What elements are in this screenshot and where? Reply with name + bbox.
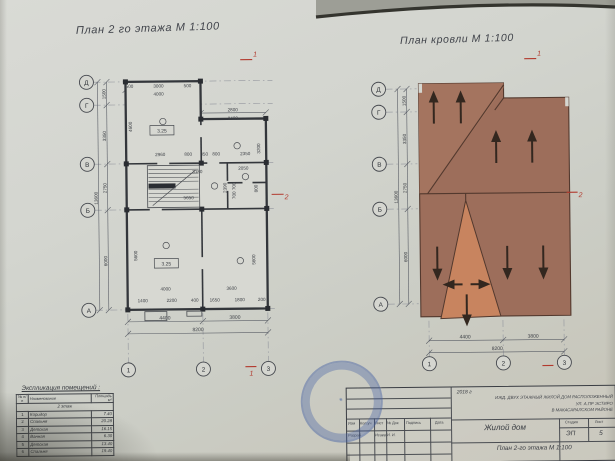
dim-label: 4400 bbox=[159, 315, 170, 321]
section-mark: 2 bbox=[578, 192, 583, 199]
tb-col-header: Изм bbox=[348, 422, 355, 426]
stamp-text: ⁕ bbox=[338, 398, 345, 406]
dim-label: 3800 bbox=[528, 334, 539, 340]
dim-label: 500 bbox=[184, 83, 192, 88]
roof-plan-drawing: 1500 3350 2750 6000 13600 4400 3800 8200… bbox=[354, 25, 615, 388]
roof-surface bbox=[418, 82, 570, 319]
dim-label: 800 bbox=[184, 152, 192, 157]
tb-sheet-value: 5 bbox=[599, 430, 603, 437]
col-header: № п/п bbox=[16, 394, 28, 403]
dim-label: 3400 bbox=[228, 116, 239, 121]
axis-label: Д bbox=[84, 80, 89, 87]
dim-label: 3350 bbox=[402, 133, 407, 144]
dim-label: 2800 bbox=[228, 107, 239, 112]
dim-label: 350 bbox=[200, 152, 208, 157]
exterior-walls bbox=[125, 80, 267, 309]
axis-label: Б bbox=[378, 207, 382, 214]
section-mark: 1 bbox=[537, 51, 541, 58]
dim-label: 800 bbox=[254, 184, 259, 192]
dim-label: 200 bbox=[258, 297, 266, 302]
dim-label: 2390 bbox=[222, 182, 227, 193]
dim-label: 4000 bbox=[160, 286, 171, 291]
tb-row-value: Исаев И. И. bbox=[375, 433, 396, 437]
axis-label: 1 bbox=[428, 361, 432, 368]
cell-num: 2 bbox=[16, 419, 28, 427]
axis-label: 2 bbox=[202, 367, 206, 374]
dim-label: 1500 bbox=[402, 95, 407, 106]
dim-label: 6000 bbox=[403, 251, 408, 262]
dim-label: 700 700 bbox=[231, 182, 236, 199]
dim-label: 400 bbox=[191, 298, 199, 303]
cell-num: 1 bbox=[16, 411, 28, 419]
axis-label: 3 bbox=[563, 360, 567, 367]
paper-sheet: План 2 го этажа М 1:100 План кровли М 1:… bbox=[0, 0, 615, 461]
tb-row-label: Разраб bbox=[348, 433, 361, 437]
cell-name: Спальня bbox=[29, 448, 92, 456]
cell-num: 4 bbox=[17, 434, 29, 442]
dim-label: 1800 bbox=[235, 297, 246, 302]
cell-num: 5 bbox=[17, 441, 29, 449]
dim-label: 4600 bbox=[128, 121, 133, 132]
dim-label: 4000 bbox=[153, 91, 164, 96]
dim-label: 3180 bbox=[192, 169, 203, 174]
title-block: Изм Кол.уч Лист № Док Подпись Дата Разра… bbox=[346, 385, 615, 461]
dim-label: 6000 bbox=[103, 256, 108, 267]
dim-label: 2200 bbox=[167, 298, 178, 303]
window-sills bbox=[145, 311, 202, 321]
tb-stage-value: ЭП bbox=[566, 430, 575, 437]
room-schedule-table: № п/п Наименование Площадь м² 2 этаж 1 К… bbox=[16, 393, 115, 457]
axis-label: 1 bbox=[127, 367, 131, 374]
floor-plan-drawing: 3.25 3.25 500 3000 500 4000 2800 3400 46… bbox=[56, 28, 350, 391]
axis-label: Б bbox=[86, 208, 90, 215]
dim-label: 8200 bbox=[192, 327, 203, 333]
dim-label: 5600 bbox=[251, 254, 256, 265]
tb-drawing-name: План 2-го этажа М 1:100 bbox=[453, 444, 615, 453]
dim-label: 500 bbox=[126, 84, 134, 89]
elevation-value: 3.25 bbox=[157, 128, 167, 134]
dim-label: 2960 bbox=[155, 152, 166, 157]
axis-label: Д bbox=[376, 87, 381, 94]
room-schedule-title: Экспликация помещений : bbox=[22, 384, 118, 392]
tb-col-header: № Док bbox=[387, 421, 399, 425]
dim-label: 5650 bbox=[184, 195, 195, 200]
dim-label: 4400 bbox=[460, 334, 471, 340]
cell-num: 3 bbox=[17, 426, 29, 434]
axis-label: Г bbox=[85, 103, 89, 110]
dim-label: 5600 bbox=[133, 250, 138, 261]
section-mark: 2 bbox=[284, 194, 289, 201]
dim-label: 2350 bbox=[240, 151, 251, 156]
dim-label: 1400 bbox=[138, 298, 149, 303]
dim-label: 13600 bbox=[94, 191, 99, 204]
axis-label: В bbox=[377, 162, 381, 169]
tb-col-header: Подпись bbox=[406, 421, 421, 425]
dim-label: 3350 bbox=[102, 131, 107, 142]
axis-label: Г bbox=[377, 110, 381, 117]
tb-stage-label: Стадия bbox=[565, 420, 578, 424]
axis-label: В bbox=[85, 162, 89, 169]
room-schedule: Экспликация помещений : № п/п Наименован… bbox=[16, 384, 119, 461]
elevation-value: 3.25 bbox=[161, 261, 171, 267]
drawing-sheet-photo: План 2 го этажа М 1:100 План кровли М 1:… bbox=[0, 0, 615, 461]
dim-label: 3800 bbox=[229, 315, 240, 321]
dim-label: 800 bbox=[212, 151, 220, 156]
dim-label: 3200 bbox=[256, 143, 261, 154]
dim-label: 1650 bbox=[210, 297, 221, 302]
section-mark: 1 bbox=[253, 52, 257, 59]
axis-label: 2 bbox=[502, 360, 506, 367]
col-header: Площадь м² bbox=[91, 394, 113, 404]
dim-label: 2050 bbox=[238, 166, 249, 171]
tb-project-description: ИЖД. ДВУХ ЭТАЖНЫЙ ЖИЛОЙ ДОМ РАСПОЛОЖЕННЫ… bbox=[455, 394, 613, 416]
dim-label: 8200 bbox=[492, 346, 503, 352]
table-row: 6 Спальня 19.40 bbox=[17, 448, 114, 457]
tb-sheet-label: Лист bbox=[595, 420, 603, 424]
tb-col-header: Кол.уч bbox=[360, 421, 371, 425]
cell-area: 19.40 bbox=[92, 448, 114, 456]
dim-label: 3600 bbox=[226, 286, 237, 291]
tb-col-header: Лист bbox=[375, 421, 383, 425]
tb-object-name: Жилой дом bbox=[453, 422, 557, 432]
dim-label: 3000 bbox=[153, 83, 164, 88]
section-mark: 1 bbox=[249, 371, 253, 378]
dim-label: 13600 bbox=[394, 190, 399, 203]
dim-label: 1500 bbox=[102, 89, 107, 100]
axis-label: 3 bbox=[267, 366, 271, 373]
tb-col-header: Дата bbox=[435, 421, 443, 425]
dim-label: 2750 bbox=[102, 183, 107, 194]
dim-label: 2750 bbox=[403, 182, 408, 193]
cell-num: 6 bbox=[17, 449, 29, 457]
tb-project-line: В МАКАСАРАЛСКОМ РАЙОНЕ bbox=[455, 407, 613, 415]
